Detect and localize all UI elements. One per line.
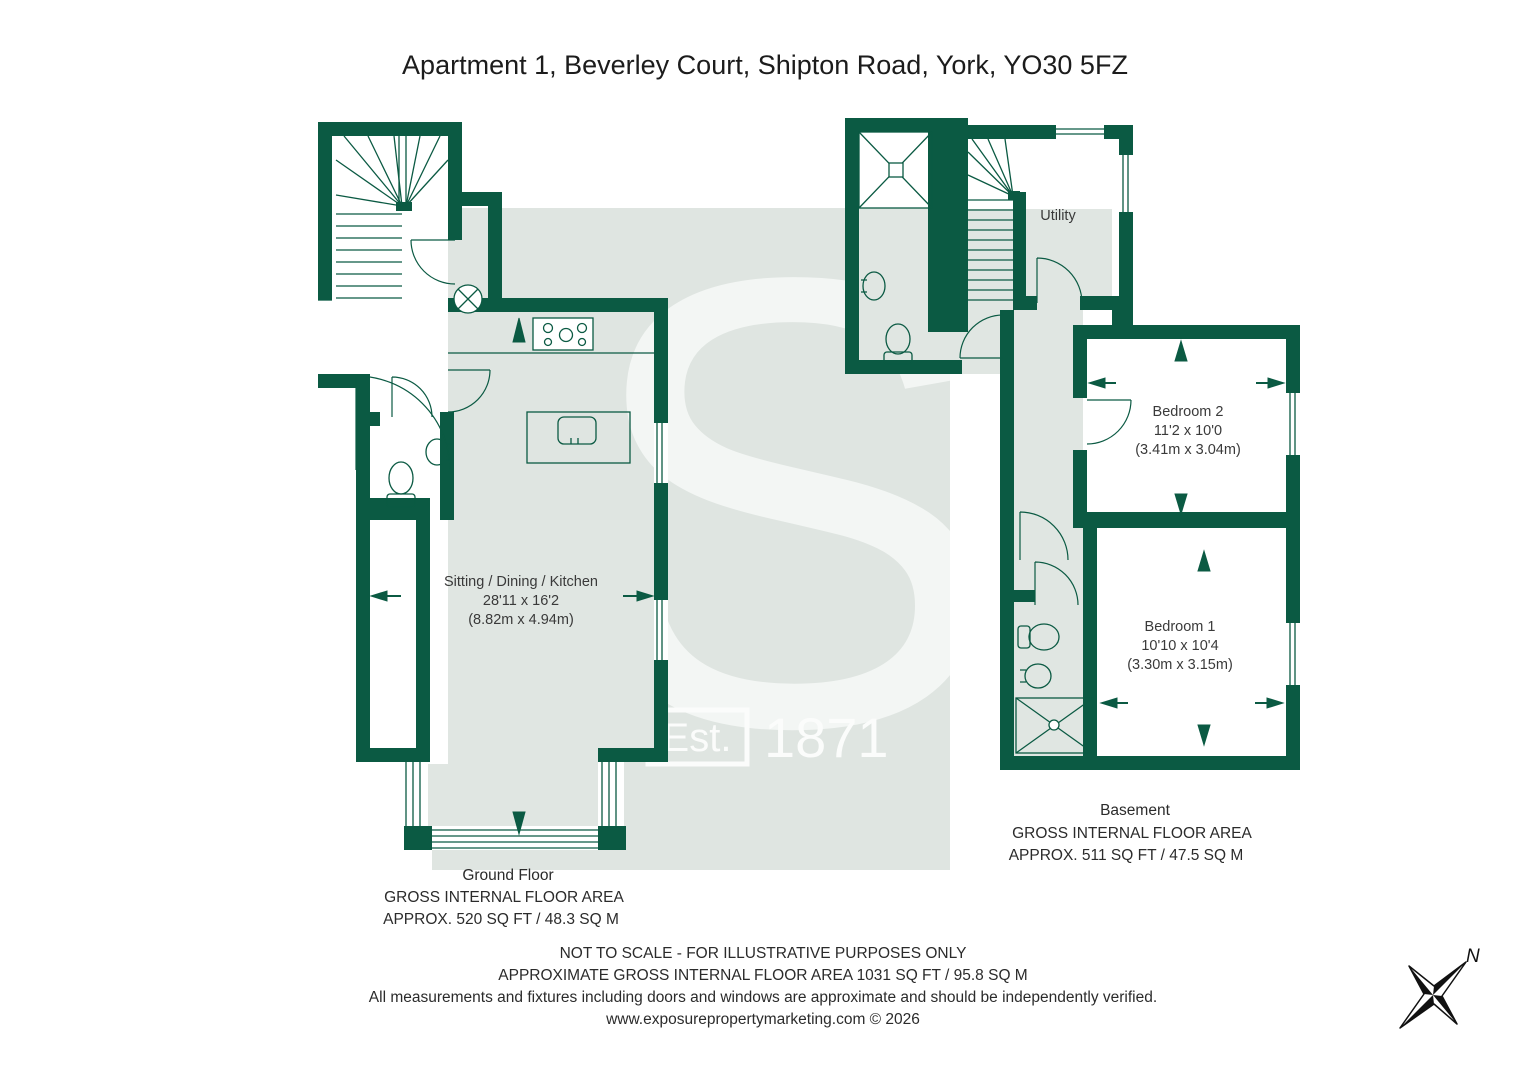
watermark-year: 1871 (764, 706, 889, 769)
bedroom1-dims-metric: (3.30m x 3.15m) (1127, 657, 1233, 673)
living-room-dims-metric: (8.82m x 4.94m) (468, 612, 574, 628)
watermark-est-label: Est. (663, 716, 732, 760)
bedroom1-label: Bedroom 1 (1145, 619, 1216, 635)
bedroom2-dims-metric: (3.41m x 3.04m) (1135, 442, 1241, 458)
compass-icon: N (1400, 946, 1480, 1028)
compass-north-label: N (1466, 946, 1480, 967)
living-room-label: Sitting / Dining / Kitchen (444, 574, 598, 590)
floorplan-canvas: Apartment 1, Beverley Court, Shipton Roa… (0, 0, 1527, 1080)
ground-floor-area-line2: APPROX. 520 SQ FT / 48.3 SQ M (383, 911, 619, 928)
basement-area-line2: APPROX. 511 SQ FT / 47.5 SQ M (1009, 847, 1244, 864)
floorplan-page: Apartment 1, Beverley Court, Shipton Roa… (0, 0, 1527, 1080)
hob-icon (533, 318, 593, 350)
ground-floor-area-line1: GROSS INTERNAL FLOOR AREA (384, 889, 624, 906)
living-room-dims-imperial: 28'11 x 16'2 (483, 593, 559, 609)
bedroom1-dims-imperial: 10'10 x 10'4 (1141, 638, 1218, 654)
utility-label: Utility (1040, 208, 1076, 224)
ground-floor-title: Ground Floor (462, 867, 553, 884)
footer-line4: www.exposurepropertymarketing.com © 2026 (605, 1011, 920, 1028)
boiler-icon (454, 285, 482, 313)
footer-line3: All measurements and fixtures including … (369, 989, 1157, 1006)
basement-area-line1: GROSS INTERNAL FLOOR AREA (1012, 825, 1252, 842)
basement-caption: Basement GROSS INTERNAL FLOOR AREA APPRO… (1009, 802, 1253, 864)
ground-floor-caption: Ground Floor GROSS INTERNAL FLOOR AREA A… (383, 867, 624, 928)
footer-line2: APPROXIMATE GROSS INTERNAL FLOOR AREA 10… (498, 967, 1027, 984)
footer-disclaimer: NOT TO SCALE - FOR ILLUSTRATIVE PURPOSES… (369, 945, 1157, 1028)
footer-line1: NOT TO SCALE - FOR ILLUSTRATIVE PURPOSES… (560, 945, 967, 962)
page-title: Apartment 1, Beverley Court, Shipton Roa… (402, 50, 1128, 80)
basement-title: Basement (1100, 802, 1170, 819)
bedroom2-dims-imperial: 11'2 x 10'0 (1154, 423, 1222, 439)
bedroom2-label: Bedroom 2 (1153, 404, 1224, 420)
